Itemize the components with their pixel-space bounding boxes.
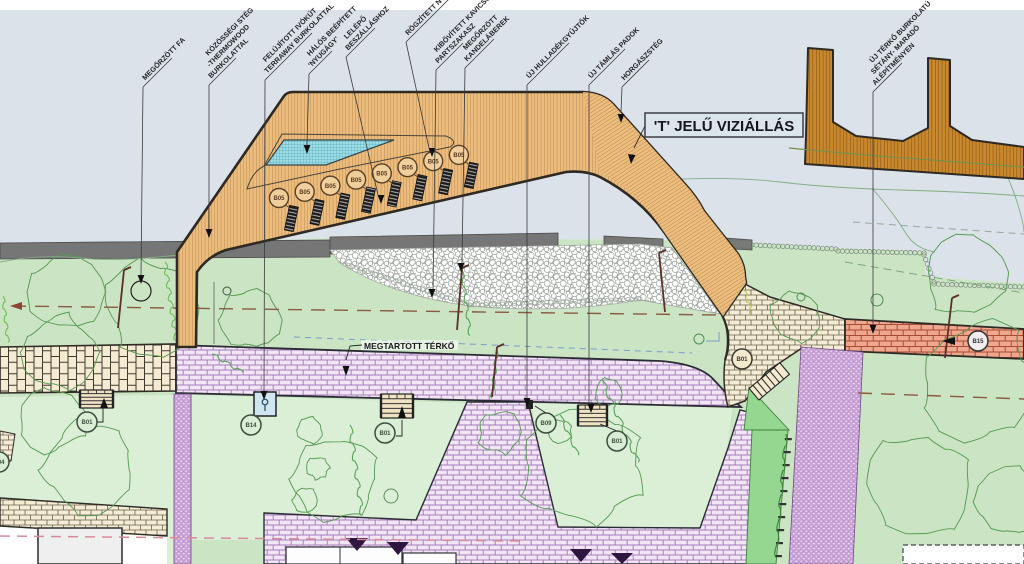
svg-text:B01: B01 [611,439,623,445]
svg-text:B01: B01 [379,431,391,437]
svg-text:B14: B14 [245,423,257,429]
svg-text:B05: B05 [402,165,414,171]
svg-text:B05: B05 [299,190,311,196]
svg-text:B15: B15 [972,339,984,345]
svg-text:B01: B01 [736,357,748,363]
svg-text:MEGTARTOTT TÉRKŐ: MEGTARTOTT TÉRKŐ [364,340,455,351]
svg-text:B09: B09 [540,421,552,427]
svg-text:B05: B05 [351,178,363,184]
svg-text:B05: B05 [376,172,388,178]
svg-text:B05: B05 [273,196,285,202]
svg-text:B05: B05 [428,159,440,165]
svg-text:B01: B01 [81,420,93,426]
svg-text:B04: B04 [0,460,5,466]
svg-text:B05: B05 [325,184,337,190]
svg-text:'T' JELŰ VIZIÁLLÁS: 'T' JELŰ VIZIÁLLÁS [654,117,794,135]
